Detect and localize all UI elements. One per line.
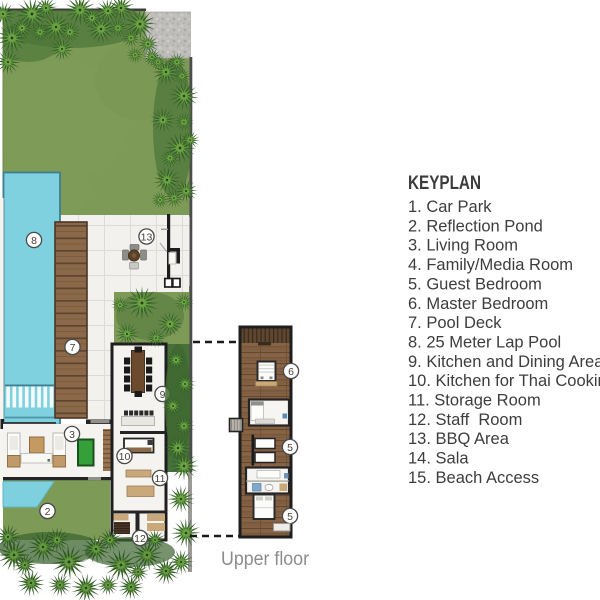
svg-text:9. Kitchen and Dining Area: 9. Kitchen and Dining Area (408, 353, 600, 371)
svg-text:4. Family/Media Room: 4. Family/Media Room (408, 256, 573, 274)
svg-text:13. BBQ Area: 13. BBQ Area (408, 430, 510, 448)
svg-text:7: 7 (70, 342, 76, 354)
svg-text:12. Staff Room: 12. Staff Room (408, 411, 522, 429)
svg-text:8: 8 (31, 235, 37, 247)
svg-text:14. Sala: 14. Sala (408, 450, 469, 468)
svg-text:2. Reflection Pond: 2. Reflection Pond (408, 217, 543, 235)
svg-text:9: 9 (160, 389, 166, 401)
svg-text:7. Pool Deck: 7. Pool Deck (408, 314, 502, 332)
svg-text:KEYPLAN: KEYPLAN (408, 173, 481, 194)
svg-text:3. Living Room: 3. Living Room (408, 237, 518, 255)
svg-text:12: 12 (134, 533, 146, 545)
svg-text:10. Kitchen for Thai Cooking: 10. Kitchen for Thai Cooking (408, 372, 600, 390)
svg-text:11: 11 (155, 473, 166, 485)
svg-text:8. 25 Meter Lap Pool: 8. 25 Meter Lap Pool (408, 334, 561, 352)
svg-text:1. Car Park: 1. Car Park (408, 198, 492, 216)
svg-text:15. Beach Access: 15. Beach Access (408, 469, 539, 487)
svg-text:6: 6 (288, 366, 294, 378)
svg-text:10: 10 (119, 451, 131, 463)
svg-text:5: 5 (287, 442, 293, 454)
svg-text:11. Storage Room: 11. Storage Room (408, 392, 541, 410)
svg-text:5: 5 (287, 511, 293, 523)
svg-text:13: 13 (141, 231, 153, 243)
svg-text:Upper floor: Upper floor (221, 549, 310, 570)
svg-text:2: 2 (45, 506, 51, 518)
svg-text:3: 3 (69, 429, 75, 441)
svg-text:6. Master Bedroom: 6. Master Bedroom (408, 295, 548, 313)
svg-text:5. Guest Bedroom: 5. Guest Bedroom (408, 275, 542, 293)
